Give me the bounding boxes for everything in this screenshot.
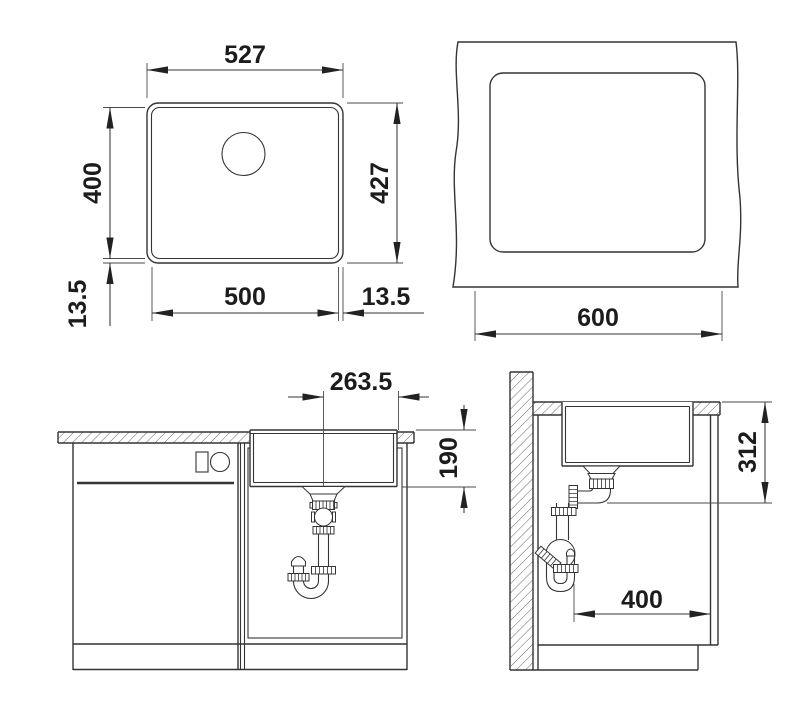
- dimension-cabinet-depth: 400: [574, 584, 711, 622]
- dimension-outer-height: 427: [347, 103, 403, 263]
- dimension-rim-side: 13.5: [343, 283, 424, 317]
- elbow-nut: [569, 486, 578, 509]
- wall-section: [510, 372, 533, 670]
- top-view: 527 400 13.5 427: [64, 41, 424, 328]
- sink-inner-rect: [152, 108, 339, 259]
- dim-label-400: 400: [79, 162, 107, 204]
- dim-label-13-5-left: 13.5: [64, 280, 92, 329]
- dim-label-190: 190: [435, 437, 463, 479]
- control-knob-icon: [211, 453, 230, 472]
- dimension-rim-bottom: 13.5: [64, 263, 114, 328]
- control-rect-icon: [196, 452, 208, 472]
- cutout-view: 600: [453, 42, 741, 341]
- trap-cap-side: [567, 549, 575, 556]
- drain-hole-icon: [222, 133, 265, 176]
- pipe-nut-lower: [312, 567, 336, 575]
- sink-outer-rect: [147, 103, 343, 263]
- dimension-inner-width: 500: [152, 267, 343, 321]
- dimension-inner-height: 400: [79, 108, 145, 264]
- dim-label-400-side: 400: [621, 586, 663, 614]
- siphon-side: [535, 466, 620, 592]
- dim-label-263-5: 263.5: [330, 368, 393, 396]
- drawing-svg: 527 400 13.5 427: [0, 0, 801, 725]
- dim-label-13-5-right: 13.5: [362, 283, 411, 311]
- front-view: 263.5 190: [58, 368, 476, 670]
- side-view: 312 400: [510, 372, 772, 670]
- sink-outline: [147, 103, 343, 263]
- dim-label-312: 312: [734, 431, 762, 473]
- dim-label-500: 500: [224, 283, 266, 311]
- drop-nut: [552, 508, 577, 516]
- trap-nut: [554, 565, 579, 573]
- dim-label-600: 600: [577, 304, 619, 332]
- pipe-nut-upper: [313, 527, 334, 535]
- dimension-outer-width: 527: [147, 41, 343, 98]
- dim-label-427: 427: [366, 162, 394, 204]
- cap-nut: [288, 574, 309, 582]
- dimension-drain-offset: 263.5: [288, 368, 429, 430]
- ball-joint: [315, 508, 333, 526]
- locknut-side: [590, 479, 614, 489]
- trap-cap: [292, 557, 306, 567]
- dim-label-527: 527: [224, 41, 266, 69]
- sink-installation-drawing: 527 400 13.5 427: [0, 0, 801, 725]
- siphon-front: [288, 487, 345, 599]
- dimension-cabinet-width: 600: [475, 291, 722, 341]
- sink-basin-side: [562, 402, 693, 466]
- dimension-bowl-depth: 190: [402, 405, 476, 513]
